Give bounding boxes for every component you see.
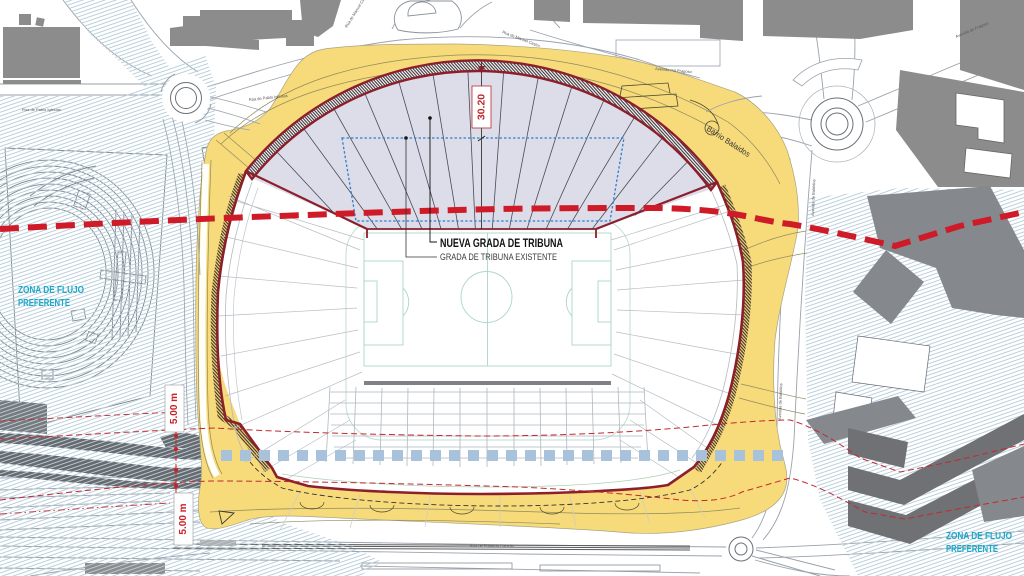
svg-text:30.20: 30.20 <box>476 94 488 120</box>
svg-text:5.00 m: 5.00 m <box>178 503 189 534</box>
svg-text:PREFERENTE: PREFERENTE <box>18 297 70 309</box>
svg-text:GRADA DE TRIBUNA EXISTENTE: GRADA DE TRIBUNA EXISTENTE <box>440 252 557 262</box>
svg-text:5.00 m: 5.00 m <box>169 393 180 424</box>
svg-text:NUEVA GRADA DE TRIBUNA: NUEVA GRADA DE TRIBUNA <box>440 238 563 250</box>
svg-text:Rúa de Pablo Iglesias: Rúa de Pablo Iglesias <box>22 107 61 112</box>
svg-text:PREFERENTE: PREFERENTE <box>946 543 998 555</box>
svg-text:ZONA DE FLUJO: ZONA DE FLUJO <box>946 530 1012 542</box>
svg-text:Rúa de Eduardo Cabello: Rúa de Eduardo Cabello <box>470 543 515 548</box>
svg-text:ZONA DE FLUJO: ZONA DE FLUJO <box>18 284 84 296</box>
